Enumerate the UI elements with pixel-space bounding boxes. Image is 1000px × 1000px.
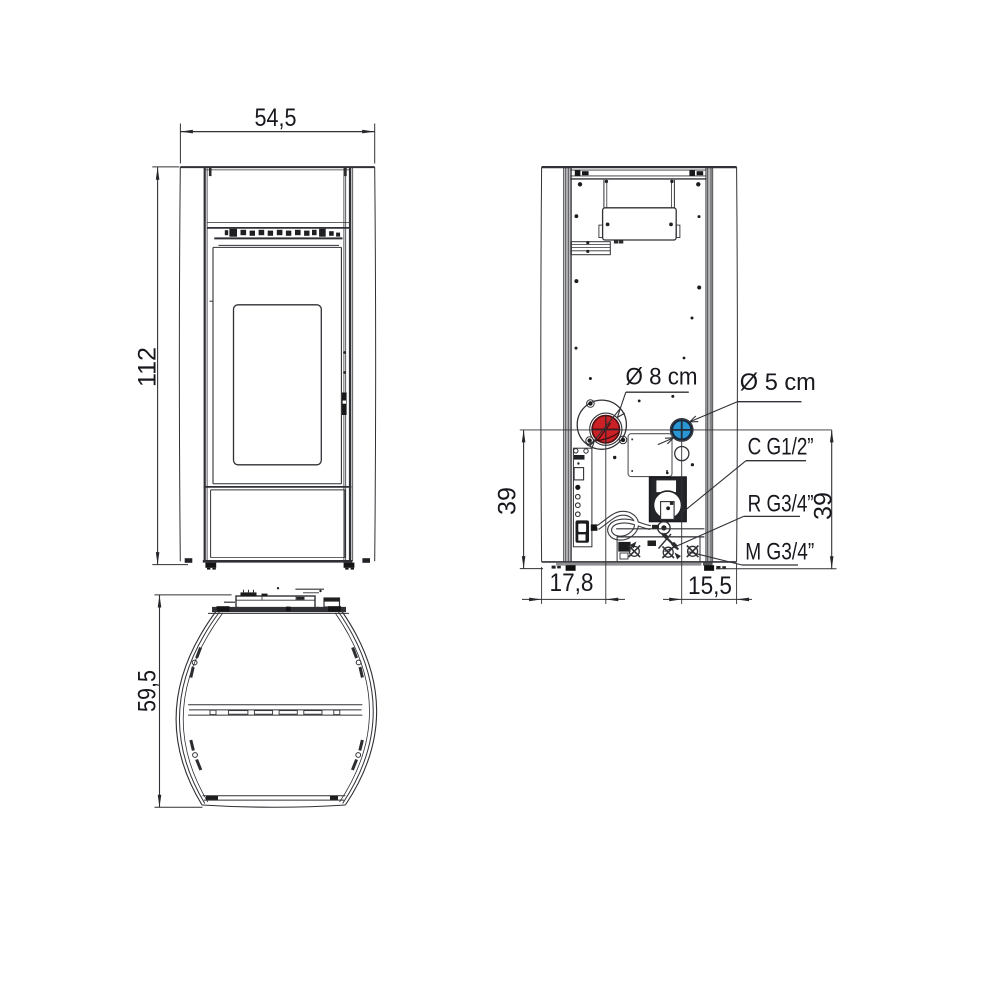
svg-text:39: 39 — [810, 492, 838, 520]
svg-text:17,8: 17,8 — [550, 569, 594, 597]
svg-text:39: 39 — [494, 487, 522, 515]
svg-text:112: 112 — [134, 347, 162, 387]
svg-text:Ø 5 cm: Ø 5 cm — [740, 369, 816, 396]
svg-text:Ø 8 cm: Ø 8 cm — [626, 364, 698, 391]
svg-text:15,5: 15,5 — [688, 572, 732, 600]
svg-text:R G3/4”: R G3/4” — [748, 491, 814, 518]
svg-text:59,5: 59,5 — [134, 670, 162, 712]
svg-text:M G3/4”: M G3/4” — [745, 539, 814, 566]
svg-text:C G1/2”: C G1/2” — [748, 434, 814, 461]
svg-text:54,5: 54,5 — [255, 104, 297, 132]
